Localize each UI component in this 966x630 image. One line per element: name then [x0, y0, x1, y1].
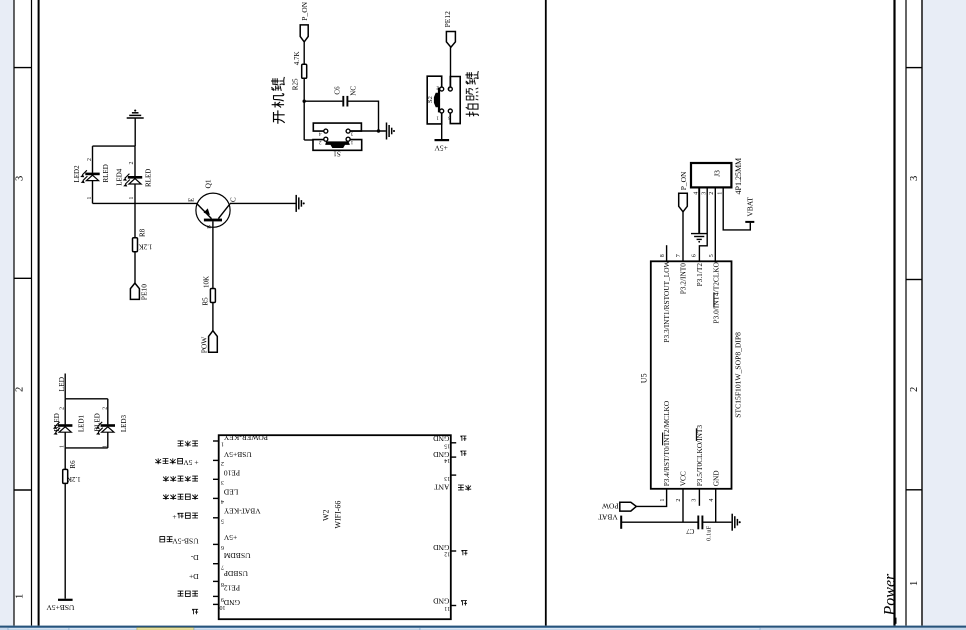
svg-text:2: 2: [102, 407, 108, 410]
svg-text:C6: C6: [334, 86, 342, 95]
svg-text:W2: W2: [321, 509, 330, 521]
svg-text:2: 2: [129, 162, 135, 165]
svg-text:S1: S1: [333, 150, 341, 158]
svg-text:0.1uF: 0.1uF: [706, 525, 713, 541]
svg-text:POW: POW: [601, 501, 619, 510]
svg-text:POWER-KEY: POWER-KEY: [223, 433, 268, 442]
svg-text:USBDM: USBDM: [223, 551, 250, 560]
svg-text:P3.0/INT4/T2CLKO: P3.0/INT4/T2CLKO: [711, 262, 720, 323]
svg-text:4: 4: [709, 499, 715, 502]
svg-text:P_ON: P_ON: [300, 1, 309, 20]
svg-text:1: 1: [87, 197, 93, 200]
svg-text:8: 8: [660, 254, 666, 257]
svg-text:USB+5V: USB+5V: [46, 603, 75, 612]
svg-text:2: 2: [15, 387, 26, 392]
svg-text:2: 2: [709, 192, 715, 195]
svg-text:GND: GND: [433, 450, 450, 459]
svg-text:3: 3: [221, 479, 224, 485]
svg-text:+ 5V: + 5V: [183, 458, 199, 467]
svg-text:PE10: PE10: [140, 284, 149, 301]
svg-text:2: 2: [909, 387, 920, 392]
svg-text:1.2K: 1.2K: [67, 475, 81, 483]
svg-text:5: 5: [221, 517, 224, 523]
svg-text:USB+5V: USB+5V: [223, 450, 252, 459]
svg-text:P3.1/T2: P3.1/T2: [695, 263, 704, 287]
svg-text:LED: LED: [223, 488, 238, 497]
svg-text:9: 9: [221, 596, 224, 602]
svg-text:RLED: RLED: [144, 169, 152, 187]
svg-text:VBAT-KEY: VBAT-KEY: [223, 507, 260, 516]
svg-text:USBDP: USBDP: [224, 569, 248, 578]
svg-text:U5: U5: [640, 373, 649, 383]
svg-text:ANT: ANT: [434, 483, 450, 492]
svg-text:2: 2: [87, 158, 93, 161]
svg-text:4: 4: [221, 498, 224, 504]
svg-text:2: 2: [676, 499, 682, 502]
svg-text:BLED: BLED: [94, 413, 102, 431]
svg-text:Power: Power: [882, 573, 899, 617]
svg-text:P3.3/INT1/RSTOUT_LOW: P3.3/INT1/RSTOUT_LOW: [662, 260, 671, 342]
svg-text:7: 7: [221, 563, 224, 569]
svg-text:R6: R6: [69, 460, 77, 469]
svg-text:J3: J3: [712, 170, 721, 177]
svg-text:1.2K: 1.2K: [139, 242, 153, 250]
svg-text:1: 1: [909, 581, 920, 586]
svg-text:1: 1: [60, 445, 66, 448]
svg-text:LED: LED: [57, 376, 66, 391]
svg-text:Q1: Q1: [204, 179, 213, 188]
svg-text:3: 3: [15, 176, 26, 181]
svg-text:4P1.25MM: 4P1.25MM: [734, 158, 743, 195]
svg-text:PE12: PE12: [443, 11, 452, 28]
svg-text:6: 6: [221, 544, 224, 550]
svg-text:P_ON: P_ON: [679, 171, 688, 190]
svg-text:NC: NC: [350, 86, 358, 96]
svg-text:USB-5V: USB-5V: [172, 536, 199, 545]
svg-text:D+: D+: [189, 572, 199, 581]
svg-text:7: 7: [676, 254, 682, 257]
svg-text:R25: R25: [292, 78, 300, 90]
svg-text:LED4: LED4: [116, 168, 124, 186]
svg-text:4.7K: 4.7K: [293, 51, 301, 65]
svg-text:BLED: BLED: [53, 413, 61, 431]
svg-text:13: 13: [444, 475, 450, 481]
svg-text:8: 8: [221, 581, 224, 587]
svg-text:10K: 10K: [202, 276, 210, 288]
svg-text:C7: C7: [686, 527, 695, 535]
svg-text:+5V: +5V: [223, 533, 237, 542]
svg-text:3: 3: [692, 499, 698, 502]
svg-text:R5: R5: [202, 297, 210, 306]
svg-text:GND: GND: [433, 434, 450, 443]
svg-text:GND: GND: [433, 543, 450, 552]
svg-text:WIFI-66: WIFI-66: [333, 501, 342, 529]
svg-text:STC15F101W_SOP8_DIP8: STC15F101W_SOP8_DIP8: [734, 332, 743, 418]
svg-text:POW: POW: [199, 336, 208, 354]
svg-text:1: 1: [15, 594, 26, 599]
svg-text:1: 1: [129, 197, 135, 200]
svg-text:PE12: PE12: [224, 584, 241, 593]
svg-text:P3.4/RST/T0/INT2/MCLKO: P3.4/RST/T0/INT2/MCLKO: [662, 401, 671, 486]
svg-text:1: 1: [221, 441, 224, 447]
svg-text:VBAT: VBAT: [746, 197, 755, 217]
svg-text:VCC: VCC: [678, 471, 687, 486]
svg-text:+5V: +5V: [434, 143, 448, 152]
svg-text:1: 1: [660, 499, 666, 502]
svg-text:PE10: PE10: [224, 469, 241, 478]
svg-text:C: C: [230, 197, 238, 202]
svg-text:RLED: RLED: [102, 164, 110, 182]
svg-text:S2: S2: [427, 96, 434, 103]
svg-text:+: +: [172, 513, 176, 522]
svg-text:6: 6: [692, 254, 698, 257]
svg-text:D-: D-: [190, 553, 198, 562]
svg-text:2: 2: [60, 407, 66, 410]
svg-text:VBAT: VBAT: [598, 513, 618, 522]
svg-text:E: E: [188, 198, 196, 202]
svg-text:R8: R8: [139, 228, 147, 237]
svg-text:GND: GND: [711, 470, 720, 487]
svg-text:GND: GND: [433, 597, 450, 606]
svg-text:LED3: LED3: [120, 414, 128, 432]
svg-text:LED2: LED2: [73, 165, 81, 183]
svg-text:P3.2/INT0: P3.2/INT0: [678, 263, 687, 295]
svg-text:5: 5: [709, 254, 715, 257]
svg-text:2: 2: [221, 460, 224, 466]
svg-text:LED1: LED1: [78, 414, 86, 432]
svg-text:GND: GND: [223, 598, 240, 607]
svg-text:3: 3: [909, 176, 920, 181]
svg-text:B: B: [206, 225, 212, 229]
